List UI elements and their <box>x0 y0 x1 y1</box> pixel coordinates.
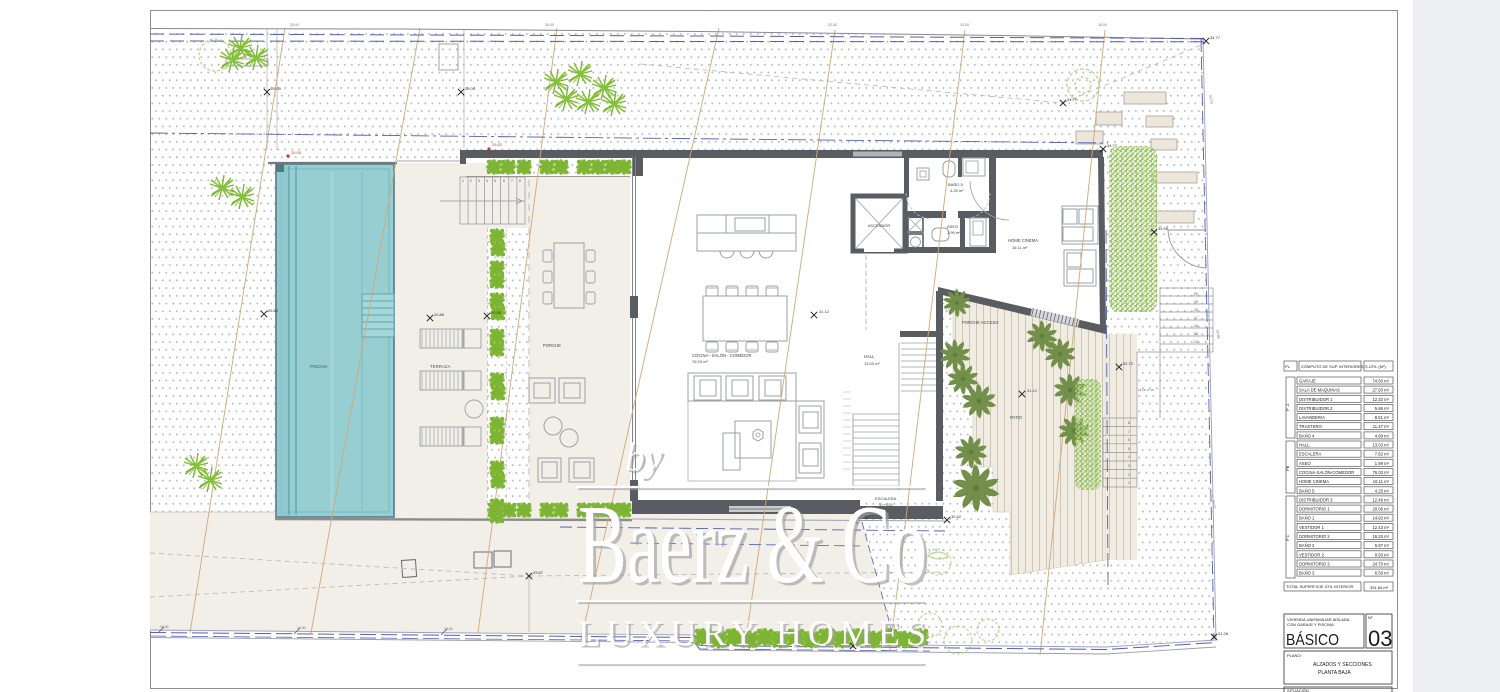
svg-text:5: 5 <box>1128 447 1130 451</box>
svg-text:10.00: 10.00 <box>444 627 453 631</box>
svg-text:6: 6 <box>503 179 505 183</box>
svg-text:9.50 m²: 9.50 m² <box>1375 552 1390 557</box>
svg-text:4.89 m²: 4.89 m² <box>1375 433 1390 438</box>
svg-text:HOME CINEMA: HOME CINEMA <box>1299 479 1329 484</box>
svg-text:PISCINA: PISCINA <box>310 364 328 369</box>
svg-text:LAVANDERIA: LAVANDERIA <box>1299 415 1325 420</box>
svg-text:31.12: 31.12 <box>819 309 830 314</box>
svg-text:DORMITORIO 2: DORMITORIO 2 <box>1299 534 1330 539</box>
svg-text:DISTRIBUIDOR 1: DISTRIBUIDOR 1 <box>1299 397 1333 402</box>
svg-text:34.00: 34.00 <box>1098 23 1107 27</box>
svg-text:BAÑO 1: BAÑO 1 <box>1299 516 1315 521</box>
svg-text:P -1: P -1 <box>1285 403 1290 411</box>
svg-text:32.72: 32.72 <box>1123 361 1134 366</box>
svg-text:BAÑO 5: BAÑO 5 <box>948 182 963 187</box>
svg-text:14: 14 <box>1194 340 1198 344</box>
svg-text:19 18 17 16: 19 18 17 16 <box>1138 388 1154 392</box>
svg-text:31.12: 31.12 <box>1027 388 1038 393</box>
svg-text:4: 4 <box>486 179 488 183</box>
svg-text:DORMITORIO 3: DORMITORIO 3 <box>1299 562 1330 567</box>
svg-text:VESTIDOR 1: VESTIDOR 1 <box>1299 525 1325 530</box>
svg-text:29.87: 29.87 <box>533 570 544 575</box>
svg-text:2: 2 <box>1128 473 1130 477</box>
svg-text:4.25 m²: 4.25 m² <box>950 188 964 193</box>
svg-text:18: 18 <box>1194 308 1198 312</box>
svg-text:27.50 m²: 27.50 m² <box>1372 388 1389 393</box>
svg-text:20.86: 20.86 <box>434 312 445 317</box>
svg-text:24.70 m²: 24.70 m² <box>1372 562 1389 567</box>
svg-text:25.62: 25.62 <box>492 142 503 147</box>
svg-text:BAÑO 3: BAÑO 3 <box>1299 571 1315 576</box>
svg-text:ALZADOS Y SECCIONES: ALZADOS Y SECCIONES <box>1313 662 1372 668</box>
svg-text:34.77: 34.77 <box>1067 97 1078 102</box>
svg-text:20.85: 20.85 <box>491 310 502 315</box>
svg-text:16.11 m²: 16.11 m² <box>1012 245 1028 250</box>
svg-text:COCINA - SALÓN - COMEDOR: COCINA - SALÓN - COMEDOR <box>692 353 752 358</box>
svg-text:25.00: 25.00 <box>291 150 302 155</box>
svg-text:14.00: 14.00 <box>297 626 306 630</box>
svg-text:13.03 m²: 13.03 m² <box>864 361 880 366</box>
svg-text:5: 5 <box>494 179 496 183</box>
svg-text:25.00: 25.00 <box>290 23 299 27</box>
svg-text:1: 1 <box>462 179 464 183</box>
svg-text:HALL: HALL <box>1299 443 1310 448</box>
svg-text:8: 8 <box>519 179 521 183</box>
svg-text:6.97 m²: 6.97 m² <box>1375 543 1390 548</box>
svg-text:PLANTA BAJA: PLANTA BAJA <box>1318 670 1351 676</box>
svg-text:5.86 m²: 5.86 m² <box>1375 406 1390 411</box>
svg-text:BAÑO 2: BAÑO 2 <box>1299 543 1315 548</box>
svg-text:7: 7 <box>1128 430 1130 434</box>
svg-text:34.58: 34.58 <box>1158 226 1169 231</box>
svg-text:6: 6 <box>1128 438 1130 442</box>
svg-text:PLANO:: PLANO: <box>1287 653 1302 658</box>
svg-text:4.25 m²: 4.25 m² <box>1375 488 1390 493</box>
svg-text:11.47 m²: 11.47 m² <box>1373 424 1390 429</box>
svg-text:16.11 m²: 16.11 m² <box>1373 479 1390 484</box>
svg-text:Baerz & Co: Baerz & Co <box>578 483 927 607</box>
svg-text:Nº: Nº <box>1368 615 1373 620</box>
svg-text:1.99 m²: 1.99 m² <box>947 230 961 235</box>
svg-text:12.49 m²: 12.49 m² <box>1372 497 1389 502</box>
svg-text:PB: PB <box>1285 465 1290 471</box>
svg-text:25.00: 25.00 <box>271 86 282 91</box>
svg-text:12.32 m²: 12.32 m² <box>1372 397 1389 402</box>
svg-text:17: 17 <box>1194 316 1198 320</box>
svg-text:391.84 m²: 391.84 m² <box>1370 585 1389 590</box>
svg-text:DISTRIBUIDOR 2: DISTRIBUIDOR 2 <box>1299 406 1333 411</box>
svg-text:ESCALERA: ESCALERA <box>1299 452 1322 457</box>
svg-text:15: 15 <box>1194 332 1198 336</box>
svg-text:PORCHE ACCESO: PORCHE ACCESO <box>962 320 999 325</box>
svg-text:74.50 m²: 74.50 m² <box>1372 379 1389 384</box>
svg-text:32.00: 32.00 <box>828 23 837 27</box>
svg-text:PATIO: PATIO <box>1010 415 1023 420</box>
svg-text:25.00: 25.00 <box>465 86 476 91</box>
svg-text:CÓMPUTO DE SUP. INTERIORES: CÓMPUTO DE SUP. INTERIORES <box>1301 364 1364 369</box>
svg-text:ASEO: ASEO <box>947 224 958 229</box>
svg-text:4: 4 <box>1128 455 1130 459</box>
svg-text:HALL: HALL <box>864 354 875 359</box>
svg-text:by: by <box>625 434 662 479</box>
svg-text:BAÑO 4: BAÑO 4 <box>1299 433 1315 438</box>
svg-text:SALA DE MAQUINAS: SALA DE MAQUINAS <box>1299 388 1340 393</box>
svg-text:12.43 m²: 12.43 m² <box>1372 525 1389 530</box>
svg-text:6.58 m²: 6.58 m² <box>1375 571 1390 576</box>
svg-text:26.00: 26.00 <box>545 23 554 27</box>
svg-text:76.03 m²: 76.03 m² <box>692 359 708 364</box>
svg-text:1.99 m²: 1.99 m² <box>1375 461 1390 466</box>
svg-text:2: 2 <box>470 179 472 183</box>
svg-text:33.00: 33.00 <box>960 23 969 27</box>
svg-text:16.25 m²: 16.25 m² <box>1372 534 1389 539</box>
svg-text:76.03 m²: 76.03 m² <box>1372 470 1389 475</box>
svg-text:8: 8 <box>1128 421 1130 425</box>
svg-text:HOME CINEMA: HOME CINEMA <box>1008 238 1038 243</box>
svg-text:DISTRIBUIDOR 3: DISTRIBUIDOR 3 <box>1299 497 1333 502</box>
svg-text:VESTIDOR 2: VESTIDOR 2 <box>1299 552 1325 557</box>
svg-text:34.77: 34.77 <box>1210 35 1221 40</box>
svg-text:14.92 m²: 14.92 m² <box>1372 516 1389 521</box>
svg-text:PL.: PL. <box>1285 364 1291 369</box>
svg-text:SITUACIÓN: SITUACIÓN <box>1287 688 1309 692</box>
svg-text:03: 03 <box>1368 626 1392 651</box>
svg-text:BAÑO 5: BAÑO 5 <box>1299 488 1315 493</box>
svg-text:25.00: 25.00 <box>268 308 279 313</box>
svg-text:COCINA-SALÓN-COMEDOR: COCINA-SALÓN-COMEDOR <box>1299 470 1354 475</box>
svg-text:34.77: 34.77 <box>1107 143 1118 148</box>
svg-text:3: 3 <box>478 179 480 183</box>
svg-text:TRASTERO: TRASTERO <box>1299 424 1323 429</box>
svg-text:20.06 m²: 20.06 m² <box>1372 507 1389 512</box>
svg-text:ASCENSOR: ASCENSOR <box>868 223 891 228</box>
svg-text:GARAJE: GARAJE <box>1299 379 1316 384</box>
svg-text:31.28: 31.28 <box>1218 631 1229 636</box>
svg-text:7.82 m²: 7.82 m² <box>1375 452 1390 457</box>
svg-text:CON GARAJE Y PISCINA: CON GARAJE Y PISCINA <box>1287 622 1334 627</box>
svg-text:ASEO: ASEO <box>1299 461 1311 466</box>
svg-text:TERRAZA: TERRAZA <box>430 364 451 369</box>
svg-text:13.03 m²: 13.03 m² <box>1372 443 1389 448</box>
svg-text:1: 1 <box>1128 481 1130 485</box>
svg-text:19: 19 <box>1194 300 1198 304</box>
svg-text:3: 3 <box>1128 464 1130 468</box>
svg-text:8.51 m²: 8.51 m² <box>1375 415 1390 420</box>
svg-text:30.42: 30.42 <box>951 514 962 519</box>
svg-text:DORMITORIO 1: DORMITORIO 1 <box>1299 507 1330 512</box>
svg-text:BÁSICO: BÁSICO <box>1286 630 1339 649</box>
svg-text:16.00: 16.00 <box>160 625 169 629</box>
svg-text:PORCHE: PORCHE <box>543 343 561 348</box>
svg-text:TOTAL SUPERFICIE ÚTIL INTERIOR: TOTAL SUPERFICIE ÚTIL INTERIOR <box>1286 584 1353 589</box>
svg-text:16: 16 <box>1194 324 1198 328</box>
svg-text:P 1: P 1 <box>1285 534 1290 541</box>
svg-text:S.ÚTIL (M²): S.ÚTIL (M²) <box>1365 364 1386 369</box>
svg-text:7: 7 <box>511 179 513 183</box>
svg-text:20: 20 <box>1194 292 1198 296</box>
